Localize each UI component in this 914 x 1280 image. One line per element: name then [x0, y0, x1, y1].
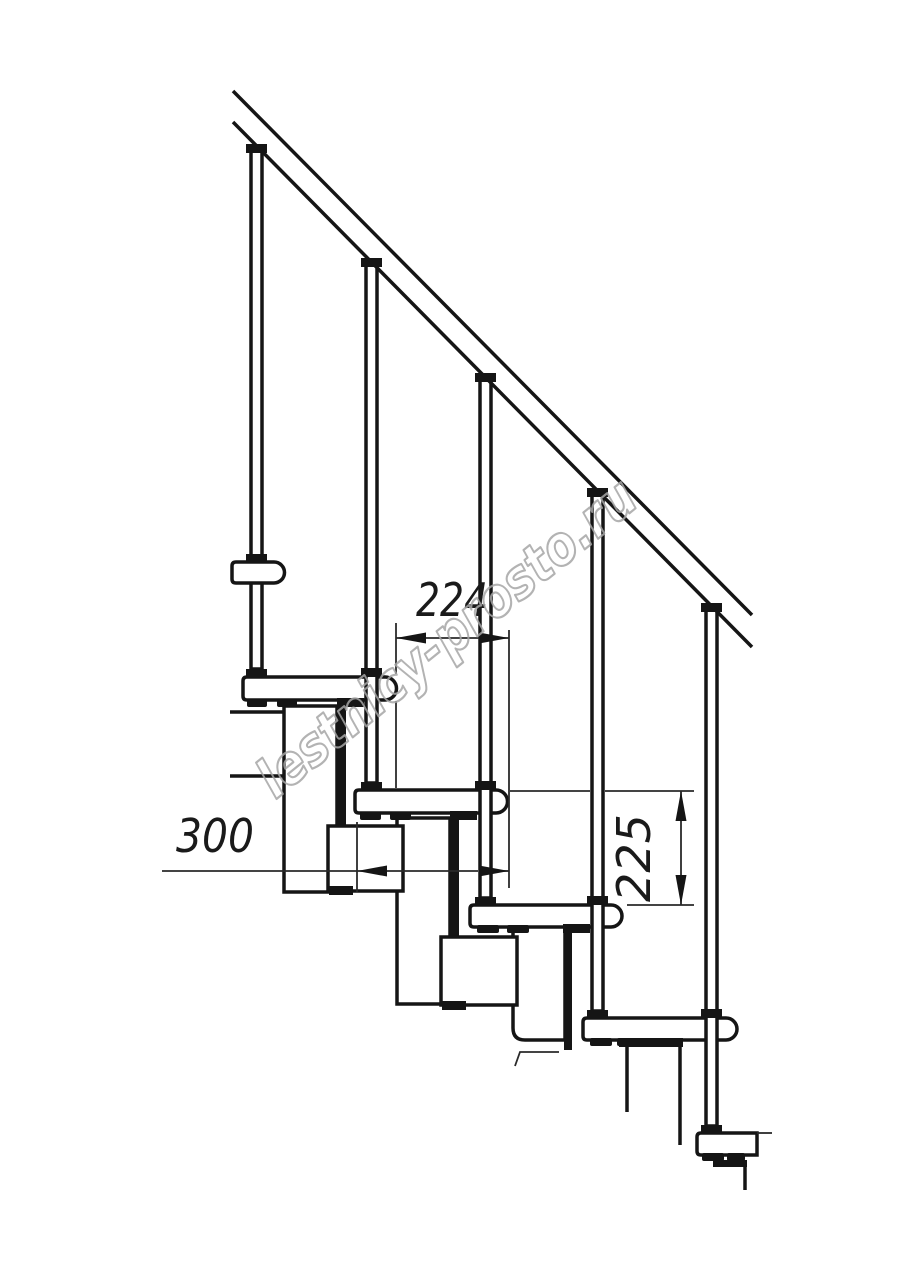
connector-pipe	[564, 927, 572, 1050]
arrowhead-down	[676, 875, 687, 905]
cap	[701, 1009, 722, 1018]
module-foot	[329, 886, 353, 895]
module-box	[441, 937, 517, 1005]
arrowhead-right	[479, 866, 509, 877]
module-box	[328, 826, 403, 891]
foot	[590, 1038, 612, 1046]
dimension-value-225: 225	[607, 814, 661, 902]
cap	[587, 1010, 608, 1019]
staircase-drawing: 224 300 225 lestnicy-prosto.ru	[0, 0, 914, 1280]
cap	[587, 896, 608, 905]
foot	[727, 1153, 745, 1161]
foot	[507, 925, 529, 933]
foot	[360, 812, 381, 820]
landing-tread-nose	[232, 562, 285, 583]
watermark-text: lestnicy-prosto.ru	[244, 465, 649, 810]
cut-line	[515, 1052, 559, 1066]
foot-band	[713, 1160, 747, 1167]
foot-band	[619, 1038, 683, 1047]
baluster-5	[706, 608, 717, 1126]
arrowhead-up	[676, 791, 687, 821]
technical-drawing-canvas: 224 300 225 lestnicy-prosto.ru	[0, 0, 914, 1280]
baluster-4	[592, 493, 603, 1011]
foot	[247, 699, 267, 707]
foot	[277, 699, 297, 707]
cap	[475, 781, 496, 790]
cap	[246, 554, 267, 562]
foot	[477, 925, 499, 933]
dimension-value-300: 300	[176, 809, 254, 863]
foot-band	[450, 811, 477, 820]
connector-pipe	[450, 813, 459, 938]
foot	[390, 812, 411, 820]
cap	[701, 1125, 722, 1134]
support-column-cut	[513, 930, 565, 1040]
foot	[702, 1153, 724, 1161]
cap	[475, 897, 496, 906]
module-foot	[442, 1001, 466, 1010]
tread-5	[697, 1133, 757, 1155]
cap	[361, 782, 382, 791]
foot-band	[563, 924, 590, 933]
cap	[246, 669, 267, 678]
baluster-1	[251, 150, 262, 669]
